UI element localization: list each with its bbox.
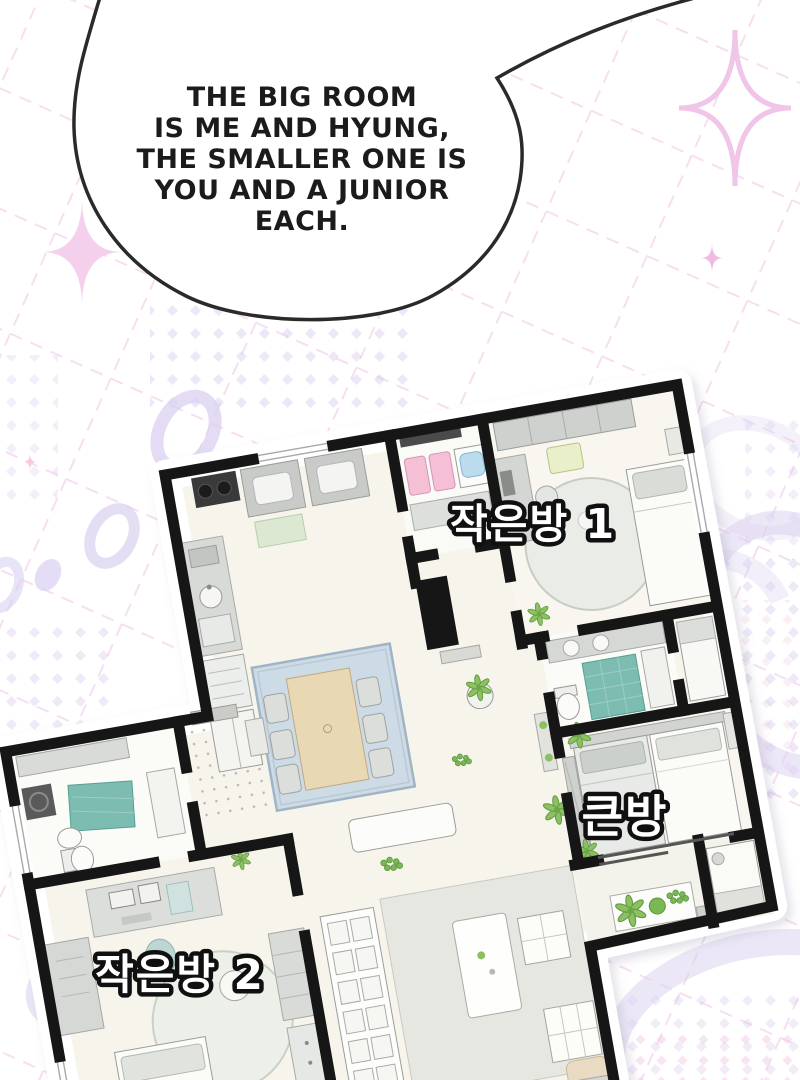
play-table (546, 443, 584, 475)
bubble-text-line: THE BIG ROOM (187, 82, 418, 113)
laptop (166, 881, 193, 914)
dining-area (252, 644, 415, 811)
dining-chair (263, 693, 290, 724)
washer (21, 784, 56, 821)
room-label-small-room-1: 작은방 1 (450, 500, 616, 548)
panel-artwork: THE BIG ROOM IS ME AND HYUNG, THE SMALLE… (0, 0, 800, 1080)
room-label-small-room-2: 작은방 2 (95, 950, 265, 999)
dining-chair (275, 763, 302, 794)
bubble-text-line: THE SMALLER ONE IS (137, 144, 468, 175)
teal-mat (68, 781, 135, 831)
room-label-big-room: 큰방 (582, 790, 669, 843)
dining-chair (355, 676, 382, 707)
bubble-text-line: EACH. (255, 206, 350, 237)
dining-chair (269, 729, 296, 760)
teal-mat (582, 654, 645, 720)
dining-chair (368, 747, 395, 778)
bubble-text-line: IS ME AND HYUNG, (154, 113, 450, 144)
bubble-text-line: YOU AND A JUNIOR (154, 175, 450, 206)
comic-panel: THE BIG ROOM IS ME AND HYUNG, THE SMALLE… (0, 0, 800, 1080)
halftone-patch (0, 355, 58, 505)
dining-chair (362, 713, 389, 744)
monitor (138, 882, 161, 903)
monitor (109, 889, 135, 909)
